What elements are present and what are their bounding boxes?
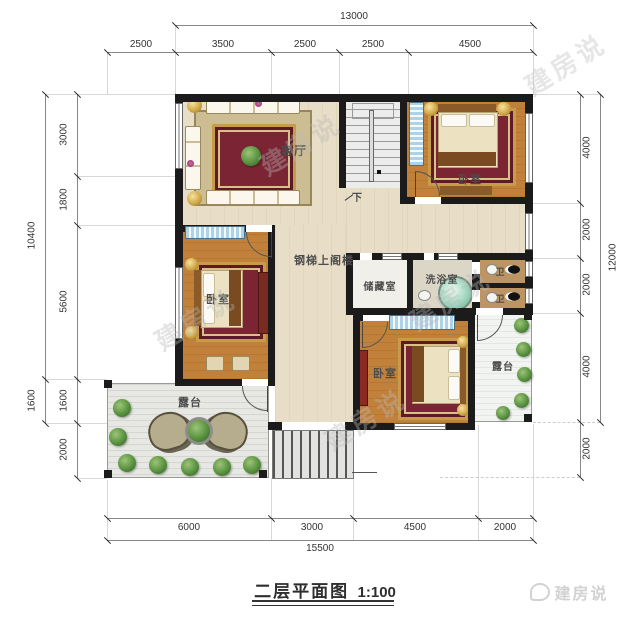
toilet bbox=[505, 265, 520, 274]
deck-shrub bbox=[118, 454, 136, 472]
dim-label: 15500 bbox=[295, 543, 345, 554]
title-underline bbox=[252, 600, 394, 602]
label-bedroom-left: 卧室 bbox=[198, 291, 238, 307]
window-bedroom-left bbox=[185, 226, 245, 239]
window-bedroom-tr-right bbox=[525, 113, 533, 183]
logo-icon bbox=[530, 583, 550, 601]
label-down: 下 bbox=[349, 189, 365, 204]
logo: 建房说 bbox=[530, 580, 608, 604]
deck-shrub bbox=[213, 458, 231, 476]
label-bedroom-tr: 卧室 bbox=[450, 171, 490, 187]
axis-line bbox=[533, 203, 580, 204]
label-living-room: 客厅 bbox=[272, 142, 316, 159]
wall-stair-bedroom bbox=[400, 94, 407, 204]
dim-label: 12000 bbox=[608, 233, 619, 283]
axis-line bbox=[175, 25, 176, 94]
axis-line bbox=[339, 52, 340, 94]
sofa-bottom bbox=[206, 190, 300, 205]
dresser bbox=[440, 186, 492, 195]
dim-label: 6000 bbox=[164, 522, 214, 533]
window-bedroom-b-bottom bbox=[394, 423, 446, 430]
toilet bbox=[505, 292, 520, 301]
dim-line-left bbox=[77, 94, 78, 478]
title-text: 二层平面图 bbox=[254, 582, 349, 601]
terrace-plant bbox=[516, 342, 531, 357]
living-plant bbox=[241, 146, 261, 166]
washbasin bbox=[418, 290, 431, 301]
bed-headboard bbox=[460, 344, 466, 404]
dim-label: 2000 bbox=[582, 205, 593, 255]
wall-hall-bottom-stub bbox=[268, 422, 282, 430]
deck-post bbox=[104, 380, 112, 388]
dim-label: 2000 bbox=[59, 425, 70, 475]
terrace-plant bbox=[496, 406, 510, 420]
dim-label: 2000 bbox=[582, 260, 593, 310]
dim-label: 2000 bbox=[480, 522, 530, 533]
floorplan-sheet: 13000 2500 3500 2500 2500 4500 10400 160… bbox=[0, 0, 640, 620]
window-wc1 bbox=[525, 261, 533, 277]
axis-line bbox=[533, 313, 580, 314]
hall-floor bbox=[407, 204, 526, 253]
dim-label: 3000 bbox=[59, 110, 70, 160]
label-terrace-left: 露台 bbox=[168, 394, 212, 410]
dim-label: 1800 bbox=[59, 175, 70, 225]
dim-label: 2500 bbox=[348, 39, 398, 50]
nightstand bbox=[185, 326, 198, 339]
door-gap bbox=[424, 253, 434, 260]
window-bedroom-tr bbox=[409, 102, 424, 166]
label-storage: 储藏室 bbox=[352, 278, 408, 293]
door-gap bbox=[476, 308, 503, 315]
dim-line-right-outer bbox=[600, 94, 601, 422]
bed-foot-blanket bbox=[438, 152, 496, 166]
title-scale: 1:100 bbox=[358, 584, 396, 601]
logo-text: 建房说 bbox=[554, 586, 608, 603]
dim-label: 2500 bbox=[280, 39, 330, 50]
deck-shrub bbox=[109, 428, 127, 446]
axis-line bbox=[77, 225, 175, 226]
terrace-post bbox=[524, 312, 532, 320]
stair-newel bbox=[377, 170, 381, 174]
wall-bedroom-b-right bbox=[468, 313, 475, 430]
label-terrace-right: 露台 bbox=[486, 358, 520, 373]
stair-rail bbox=[369, 110, 374, 182]
axis-line bbox=[478, 425, 479, 540]
window-bench-bedroom-b bbox=[389, 315, 455, 330]
bed-headboard bbox=[438, 104, 496, 112]
terrace-post bbox=[524, 414, 532, 422]
door-gap bbox=[242, 379, 268, 386]
dim-label: 5600 bbox=[59, 277, 70, 327]
dim-label: 3500 bbox=[198, 39, 248, 50]
deck-shrub bbox=[181, 458, 199, 476]
label-bedroom-bottom: 卧室 bbox=[365, 365, 405, 381]
door-gap bbox=[415, 197, 441, 204]
bed-foot-blanket bbox=[412, 346, 424, 402]
axis-line bbox=[533, 25, 534, 94]
exterior-stair-rail bbox=[352, 472, 377, 473]
dim-label: 1600 bbox=[27, 376, 38, 426]
axis-line bbox=[533, 94, 600, 95]
wall-bedroom-b-left bbox=[353, 315, 360, 430]
dim-line-bottom bbox=[107, 518, 533, 519]
bed-pillow bbox=[448, 376, 460, 400]
dim-label: 13000 bbox=[329, 11, 379, 22]
terrace-plant bbox=[514, 393, 529, 408]
label-attic-stair: 钢梯上阁楼 bbox=[282, 252, 366, 268]
chair bbox=[206, 356, 224, 371]
axis-line bbox=[533, 258, 580, 259]
axis-line bbox=[271, 478, 272, 540]
dim-line-bottom-total bbox=[107, 540, 533, 541]
axis-line bbox=[408, 52, 409, 94]
wall-utility-bottom bbox=[346, 308, 533, 315]
flower-decor bbox=[187, 160, 194, 167]
dim-label: 2500 bbox=[116, 39, 166, 50]
label-wc2: 卫 bbox=[494, 292, 506, 305]
window-wc2 bbox=[525, 288, 533, 304]
dim-line-left-outer bbox=[45, 94, 46, 423]
deck-shrub bbox=[113, 399, 131, 417]
nightstand bbox=[185, 258, 198, 271]
chair bbox=[232, 356, 250, 371]
side-table bbox=[187, 191, 202, 206]
dim-label: 10400 bbox=[27, 211, 38, 261]
window-living-left bbox=[175, 103, 183, 169]
window-storage-top bbox=[382, 253, 402, 260]
deck-shrub bbox=[149, 456, 167, 474]
dim-label: 2000 bbox=[582, 424, 593, 474]
axis-line bbox=[107, 480, 108, 540]
door-gap bbox=[472, 262, 480, 274]
dim-label: 4000 bbox=[582, 123, 593, 173]
nightstand bbox=[497, 102, 511, 116]
window-hall-right bbox=[525, 213, 533, 250]
dim-label: 1600 bbox=[59, 376, 70, 426]
dim-label: 3000 bbox=[287, 522, 337, 533]
deck-post bbox=[104, 470, 112, 478]
door-leaf bbox=[271, 232, 272, 258]
door-leaf bbox=[267, 386, 268, 412]
door-gap bbox=[472, 290, 480, 302]
wall-stair-left bbox=[339, 101, 346, 188]
bed-pillow bbox=[469, 114, 495, 127]
sofa-left bbox=[185, 126, 201, 190]
axis-line bbox=[77, 176, 175, 177]
axis-line bbox=[271, 52, 272, 94]
window-bedroom-left-wall bbox=[175, 267, 183, 339]
dim-label: 4500 bbox=[390, 522, 440, 533]
bed-pillow bbox=[441, 114, 467, 127]
door-gap bbox=[246, 225, 272, 232]
axis-line bbox=[45, 94, 175, 95]
nightstand bbox=[424, 102, 438, 116]
dim-label: 4000 bbox=[582, 342, 593, 392]
deck-post bbox=[259, 470, 267, 478]
label-bath: 洗浴室 bbox=[414, 271, 470, 286]
wall-hall-bottom-stub bbox=[345, 422, 353, 430]
window-bath-top bbox=[438, 253, 458, 260]
drawing-title: 二层平面图 1:100 bbox=[240, 577, 410, 602]
axis-line bbox=[533, 424, 534, 540]
exterior-staircase bbox=[272, 430, 354, 479]
bed-pillow bbox=[448, 349, 460, 373]
title-underline bbox=[252, 605, 394, 606]
label-wc1: 卫 bbox=[494, 265, 506, 278]
dim-line-top bbox=[107, 52, 533, 53]
axis-line bbox=[77, 478, 107, 479]
axis-line bbox=[440, 477, 580, 478]
wall-top bbox=[175, 94, 533, 102]
dim-label: 4500 bbox=[445, 39, 495, 50]
axis-line bbox=[107, 52, 108, 94]
terrace-plant bbox=[514, 318, 529, 333]
round-table-plant bbox=[185, 417, 213, 445]
dim-line-top-total bbox=[175, 25, 533, 26]
